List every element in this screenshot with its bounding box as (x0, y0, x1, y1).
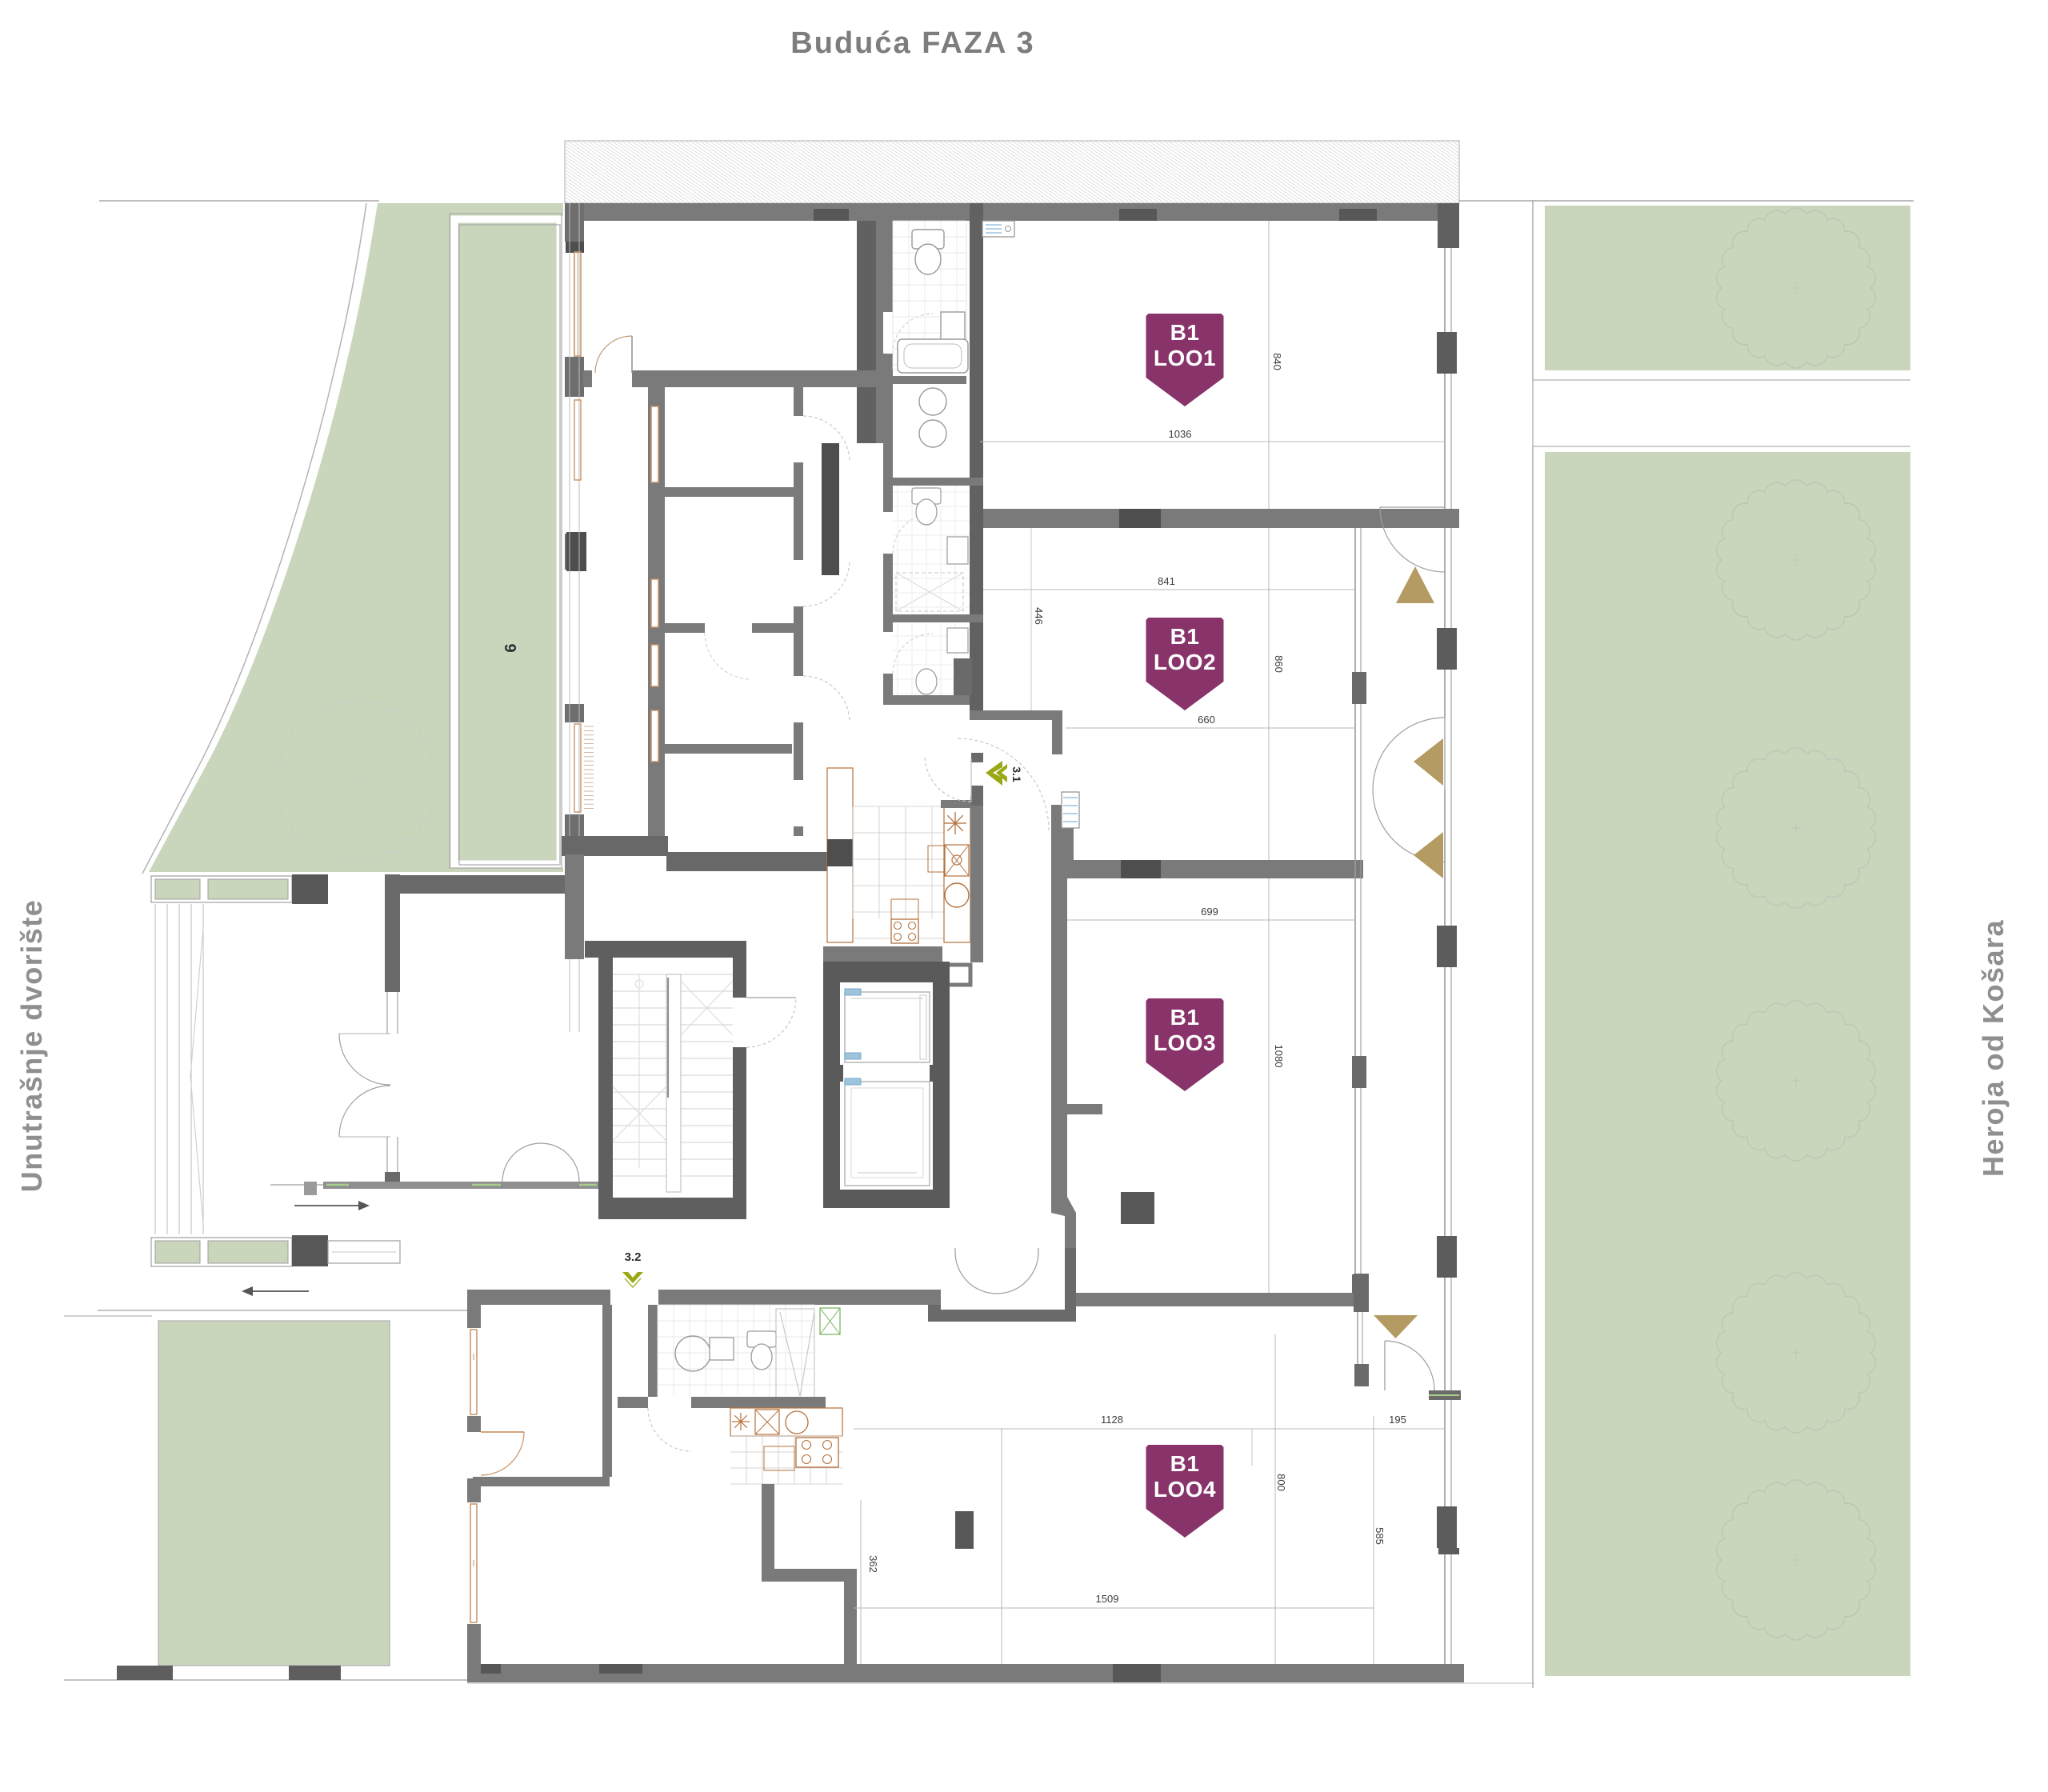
svg-text:860: 860 (1273, 655, 1285, 673)
svg-text:6: 6 (502, 643, 520, 652)
svg-text:B1: B1 (1170, 624, 1200, 649)
svg-text:585: 585 (1374, 1527, 1386, 1545)
svg-text:841: 841 (1158, 575, 1175, 587)
svg-text:B1: B1 (1170, 320, 1200, 345)
svg-text:800: 800 (1275, 1474, 1287, 1491)
svg-text:699: 699 (1201, 906, 1218, 918)
svg-text:1036: 1036 (1169, 428, 1192, 440)
svg-text:LOO2: LOO2 (1154, 650, 1216, 674)
svg-text:LOO4: LOO4 (1154, 1477, 1216, 1502)
svg-text:Buduća FAZA 3: Buduća FAZA 3 (790, 26, 1034, 60)
svg-text:B1: B1 (1170, 1451, 1200, 1476)
svg-text:1509: 1509 (1096, 1593, 1119, 1605)
svg-text:1080: 1080 (1273, 1045, 1285, 1068)
svg-text:LOO3: LOO3 (1154, 1030, 1216, 1055)
svg-text:Heroja od Košara: Heroja od Košara (1977, 919, 2010, 1177)
svg-text:446: 446 (1033, 607, 1045, 625)
svg-text:840: 840 (1271, 353, 1283, 370)
svg-text:Unutrašnje dvorište: Unutrašnje dvorište (15, 899, 48, 1193)
svg-text:660: 660 (1198, 714, 1215, 726)
svg-text:LOO1: LOO1 (1154, 346, 1216, 370)
svg-text:362: 362 (867, 1555, 879, 1573)
svg-text:3.1: 3.1 (1010, 766, 1023, 782)
svg-text:195: 195 (1389, 1414, 1406, 1426)
svg-text:1128: 1128 (1101, 1414, 1123, 1426)
svg-text:B1: B1 (1170, 1005, 1200, 1030)
svg-text:3.2: 3.2 (625, 1250, 642, 1264)
